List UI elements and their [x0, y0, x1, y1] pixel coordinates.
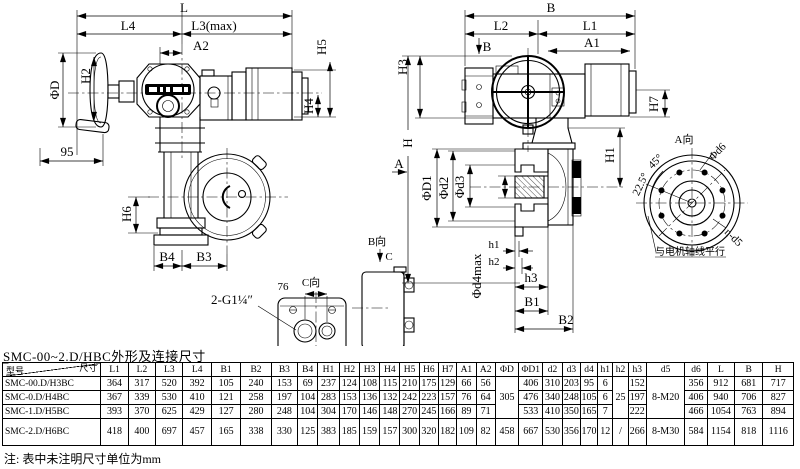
- column-header: H5: [400, 363, 419, 377]
- actuator-housing: [137, 64, 200, 117]
- value-cell: 95: [580, 377, 597, 391]
- value-cell: 356: [685, 377, 707, 391]
- mounting-flange-section: [515, 149, 581, 236]
- value-cell: 458: [495, 419, 518, 446]
- table-corner-cell: 尺寸型号: [3, 363, 101, 377]
- handwheel-front: [492, 56, 564, 134]
- value-cell: 340: [543, 391, 562, 405]
- value-cell: 697: [156, 419, 183, 446]
- value-cell: 210: [400, 377, 419, 391]
- value-cell: 240: [241, 377, 271, 391]
- engineering-drawing-sheet: { "page": { "title": "SMC-00~2.D/HBC外形及连…: [0, 0, 800, 469]
- dim-95: 95: [61, 144, 74, 159]
- value-cell: 364: [101, 377, 128, 391]
- column-header: B2: [241, 363, 271, 377]
- value-cell: 393: [101, 405, 128, 419]
- column-header: A2: [476, 363, 495, 377]
- stem-column: [154, 117, 208, 245]
- value-cell: 136: [359, 391, 379, 405]
- table-row: SMC-2.D/H6BC4184006974571653383301253831…: [3, 419, 794, 446]
- column-header: d4: [580, 363, 597, 377]
- dim-76: 76: [278, 281, 290, 293]
- value-cell: 124: [339, 377, 359, 391]
- value-cell: 170: [339, 405, 359, 419]
- value-cell: 681: [735, 377, 763, 391]
- column-header: A1: [457, 363, 476, 377]
- value-cell: 406: [685, 391, 707, 405]
- value-cell: 104: [298, 391, 318, 405]
- value-cell: 6: [598, 377, 613, 391]
- value-cell: 182: [439, 419, 457, 446]
- axis-parallel-note: 与电机轴线平行: [655, 245, 725, 258]
- value-cell: 1154: [707, 419, 734, 446]
- value-cell: 457: [183, 419, 211, 446]
- value-cell: 25: [613, 377, 628, 419]
- column-header: B: [735, 363, 763, 377]
- value-cell: 367: [101, 391, 128, 405]
- value-cell: 356: [562, 419, 580, 446]
- value-cell: 175: [419, 377, 438, 391]
- value-cell: 115: [380, 377, 400, 391]
- dim-B2: B2: [558, 312, 573, 327]
- value-cell: 466: [685, 405, 707, 419]
- value-cell: 121: [211, 391, 240, 405]
- dim-H6: H6: [119, 206, 134, 222]
- column-header: L3: [156, 363, 183, 377]
- nameplate: [145, 84, 191, 95]
- motor-front: [585, 64, 636, 116]
- column-header: L: [707, 363, 734, 377]
- column-header: H7: [439, 363, 457, 377]
- dim-45deg: 45°: [646, 152, 665, 171]
- dim-A2: A2: [193, 38, 209, 53]
- value-cell: 132: [380, 391, 400, 405]
- table-header: 尺寸型号L1L2L3L4B1B2B3B4H1H2H3H4H5H6H7A1A2ΦD…: [3, 363, 794, 377]
- c-view-box: 2-G1¼″ C向 76: [211, 275, 346, 346]
- value-cell: 89: [457, 405, 476, 419]
- value-cell: 222: [628, 405, 646, 419]
- value-cell: 148: [380, 405, 400, 419]
- value-cell: 237: [318, 377, 339, 391]
- section-arrow-A: A: [394, 156, 404, 171]
- value-cell: 127: [211, 405, 240, 419]
- dim-B3: B3: [196, 249, 211, 264]
- front-view: L L4 L3(max) A2 ΦD H2 95 H5 H4: [40, 0, 336, 271]
- value-cell: 8-M20: [646, 377, 685, 419]
- dim-L3max: L3(max): [191, 18, 236, 33]
- dim-L4: L4: [121, 18, 136, 33]
- value-cell: 1116: [763, 419, 794, 446]
- value-cell: 69: [298, 377, 318, 391]
- value-cell: 667: [519, 419, 543, 446]
- dim-H7: H7: [646, 96, 661, 112]
- value-cell: 109: [457, 419, 476, 446]
- value-cell: 197: [271, 391, 297, 405]
- value-cell: 76: [457, 391, 476, 405]
- value-cell: 157: [439, 391, 457, 405]
- value-cell: 125: [298, 419, 318, 446]
- value-cell: 300: [400, 419, 419, 446]
- value-cell: 392: [183, 377, 211, 391]
- value-cell: 339: [128, 391, 155, 405]
- c-arrow-label: C: [385, 251, 392, 263]
- value-cell: 818: [735, 419, 763, 446]
- dim-h1: h1: [489, 239, 500, 251]
- terminal-box: [200, 70, 232, 120]
- b-view-box: B向 C: [352, 234, 414, 346]
- value-cell: 146: [359, 405, 379, 419]
- column-header: H: [763, 363, 794, 377]
- dim-phiD: ΦD: [47, 81, 62, 100]
- value-cell: 350: [562, 405, 580, 419]
- value-cell: 159: [359, 419, 379, 446]
- b-view-title: B向: [368, 234, 386, 248]
- value-cell: 317: [128, 377, 155, 391]
- value-cell: 105: [211, 377, 240, 391]
- column-header: L1: [101, 363, 128, 377]
- value-cell: 304: [318, 405, 339, 419]
- value-cell: /: [613, 419, 628, 446]
- column-header: h1: [598, 363, 613, 377]
- column-header: L4: [183, 363, 211, 377]
- dim-H5: H5: [314, 39, 329, 55]
- dim-L: L: [180, 0, 188, 15]
- value-cell: 105: [580, 391, 597, 405]
- value-cell: 7: [598, 405, 613, 419]
- value-cell: 940: [707, 391, 734, 405]
- value-cell: 827: [763, 391, 794, 405]
- value-cell: 153: [339, 391, 359, 405]
- value-cell: 280: [241, 405, 271, 419]
- dim-phid4max: Φd4max: [469, 253, 484, 298]
- units-note: 注: 表中未注明尺寸单位为mm: [4, 450, 161, 467]
- value-cell: 383: [318, 419, 339, 446]
- value-cell: 400: [128, 419, 155, 446]
- table-row: SMC-00.D/H3BC364317520392105240153692371…: [3, 377, 794, 391]
- front-view-dimensions: L L4 L3(max) A2 ΦD H2 95 H5 H4: [40, 0, 336, 271]
- c-view-title: C向: [302, 275, 320, 289]
- value-cell: 1054: [707, 405, 734, 419]
- column-header: B3: [271, 363, 297, 377]
- value-cell: 533: [519, 405, 543, 419]
- dim-L1: L1: [583, 18, 597, 33]
- column-header: H2: [339, 363, 359, 377]
- motor-side: [232, 68, 308, 120]
- value-cell: 242: [400, 391, 419, 405]
- value-cell: 64: [476, 391, 495, 405]
- model-cell: SMC-2.D/H6BC: [3, 419, 101, 446]
- column-header: B4: [298, 363, 318, 377]
- value-cell: 410: [183, 391, 211, 405]
- value-cell: 153: [271, 377, 297, 391]
- value-cell: 166: [439, 405, 457, 419]
- value-cell: 245: [419, 405, 438, 419]
- dim-n-d5: n-d5: [722, 226, 745, 249]
- model-cell: SMC-00.D/H3BC: [3, 377, 101, 391]
- column-header: h3: [628, 363, 646, 377]
- value-cell: 157: [380, 419, 400, 446]
- value-cell: 165: [211, 419, 240, 446]
- dim-phiD1: ΦD1: [419, 175, 434, 200]
- value-cell: 763: [735, 405, 763, 419]
- side-view-dimensions: B L2 L1 A1 B H3 H A H7 H1: [392, 0, 670, 333]
- column-header: d2: [543, 363, 562, 377]
- value-cell: 56: [476, 377, 495, 391]
- model-cell: SMC-0.D/H4BC: [3, 391, 101, 405]
- column-header: L2: [128, 363, 155, 377]
- value-cell: 320: [419, 419, 438, 446]
- dim-B1: B1: [524, 294, 539, 309]
- column-header: d3: [562, 363, 580, 377]
- value-cell: 418: [101, 419, 128, 446]
- value-cell: 520: [156, 377, 183, 391]
- value-cell: 266: [628, 419, 646, 446]
- view-arrow-B: B: [483, 39, 492, 54]
- side-view: B L2 L1 A1 B H3 H A H7 H1: [392, 0, 670, 333]
- value-cell: 530: [156, 391, 183, 405]
- value-cell: 410: [543, 405, 562, 419]
- value-cell: 8-M30: [646, 419, 685, 446]
- value-cell: 584: [685, 419, 707, 446]
- dim-phid6: Φd6: [707, 140, 729, 162]
- value-cell: 283: [318, 391, 339, 405]
- value-cell: 203: [562, 377, 580, 391]
- value-cell: 248: [271, 405, 297, 419]
- value-cell: 104: [298, 405, 318, 419]
- value-cell: 530: [543, 419, 562, 446]
- column-header: H6: [419, 363, 438, 377]
- dim-L2: L2: [494, 18, 508, 33]
- value-cell: 152: [628, 377, 646, 391]
- column-header: ΦD1: [519, 363, 543, 377]
- value-cell: 129: [439, 377, 457, 391]
- column-header: h2: [613, 363, 628, 377]
- dim-A1: A1: [584, 35, 600, 50]
- value-cell: 270: [400, 405, 419, 419]
- value-cell: 894: [763, 405, 794, 419]
- column-header: H3: [359, 363, 379, 377]
- dim-h2: h2: [489, 256, 500, 268]
- model-cell: SMC-1.D/H5BC: [3, 405, 101, 419]
- dimension-table: 尺寸型号L1L2L3L4B1B2B3B4H1H2H3H4H5H6H7A1A2ΦD…: [2, 362, 794, 446]
- dim-H: H: [400, 138, 415, 147]
- value-cell: 706: [735, 391, 763, 405]
- value-cell: 406: [519, 377, 543, 391]
- dim-H4: H4: [301, 98, 316, 114]
- value-cell: 476: [519, 391, 543, 405]
- dim-phid2: Φd2: [436, 177, 451, 200]
- value-cell: 170: [580, 419, 597, 446]
- value-cell: 310: [543, 377, 562, 391]
- thread-label: 2-G1¼″: [211, 292, 253, 307]
- dim-H2: H2: [78, 68, 93, 84]
- value-cell: 185: [339, 419, 359, 446]
- column-header: B1: [211, 363, 240, 377]
- value-cell: 248: [562, 391, 580, 405]
- dim-h3: h3: [525, 270, 538, 285]
- value-cell: 370: [128, 405, 155, 419]
- dim-B4: B4: [159, 249, 175, 264]
- value-cell: 82: [476, 419, 495, 446]
- a-view-title: A向: [675, 132, 694, 146]
- value-cell: 717: [763, 377, 794, 391]
- column-header: d5: [646, 363, 685, 377]
- value-cell: 197: [628, 391, 646, 405]
- column-header: H4: [380, 363, 400, 377]
- value-cell: 12: [598, 419, 613, 446]
- value-cell: 165: [580, 405, 597, 419]
- table-body: SMC-00.D/H3BC364317520392105240153692371…: [3, 377, 794, 446]
- side-bracket: [462, 68, 493, 124]
- value-cell: 912: [707, 377, 734, 391]
- value-cell: 71: [476, 405, 495, 419]
- value-cell: 258: [241, 391, 271, 405]
- value-cell: 108: [359, 377, 379, 391]
- value-cell: 223: [419, 391, 438, 405]
- value-cell: 6: [598, 391, 613, 405]
- value-cell: 338: [241, 419, 271, 446]
- column-header: d6: [685, 363, 707, 377]
- value-cell: 330: [271, 419, 297, 446]
- dim-phid3: Φd3: [452, 176, 467, 199]
- dim-H1: H1: [602, 147, 617, 163]
- value-cell: 625: [156, 405, 183, 419]
- column-header: H1: [318, 363, 339, 377]
- actuator-outline-drawing: L L4 L3(max) A2 ΦD H2 95 H5 H4: [0, 0, 800, 346]
- value-cell: 305: [495, 377, 518, 419]
- flange-detail-view: A向 Φd6 45° 22.5° n-d5 与电机轴线平行: [630, 132, 748, 258]
- value-cell: 66: [457, 377, 476, 391]
- column-header: ΦD: [495, 363, 518, 377]
- value-cell: 429: [183, 405, 211, 419]
- dim-B: B: [547, 0, 556, 15]
